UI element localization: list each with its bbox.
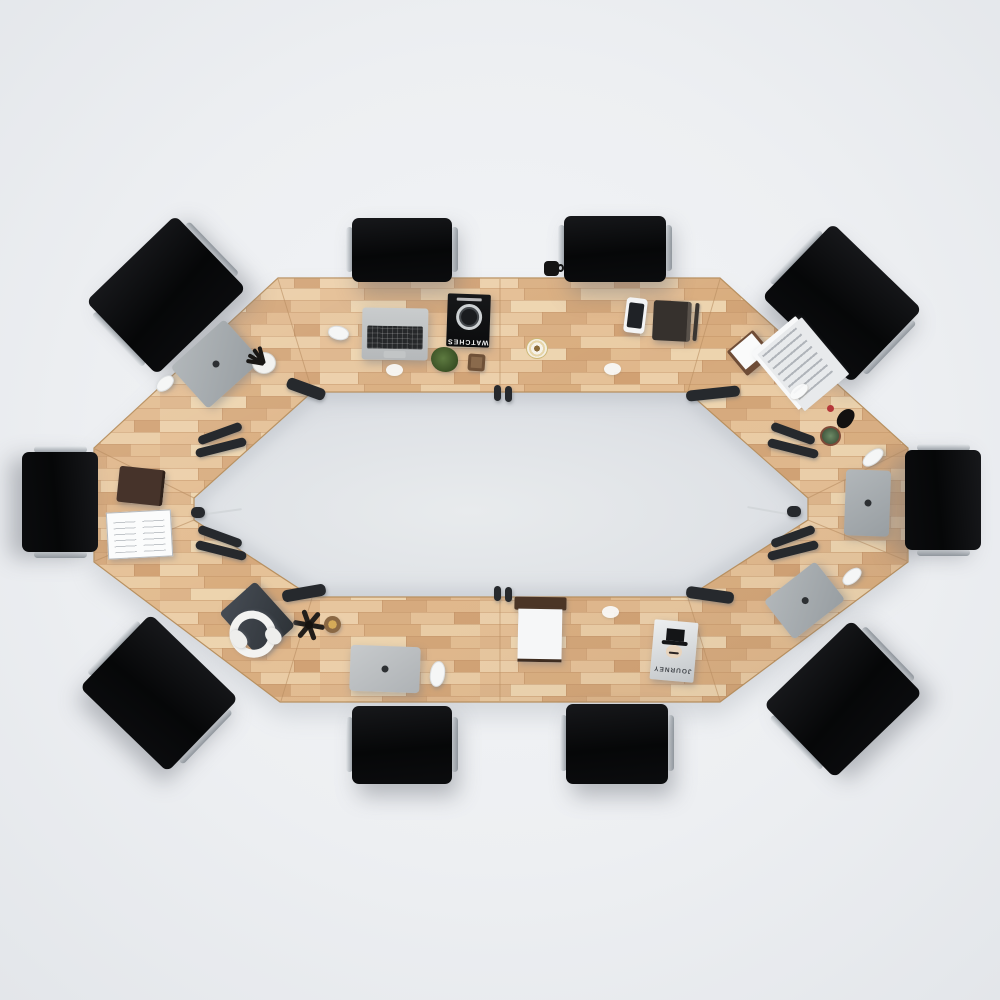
tray-paper <box>517 609 562 663</box>
pen-cup <box>252 352 276 374</box>
closed-laptop <box>349 645 421 693</box>
chair-seat <box>564 216 666 282</box>
chair-right <box>905 450 981 550</box>
chair-arm <box>451 227 458 272</box>
laptop-keyboard <box>366 325 423 349</box>
watches-magazine: WATCHES <box>446 293 491 347</box>
laptop-logo-icon <box>864 499 871 506</box>
laptop-logo-icon <box>211 359 221 369</box>
magazine-title: WATCHES <box>446 337 489 345</box>
chair-arm <box>917 549 970 556</box>
chair-bottom-left <box>352 706 452 784</box>
open-laptop <box>362 307 429 360</box>
white-cup <box>386 364 403 376</box>
white-cup <box>602 606 619 618</box>
woven-coaster <box>467 353 485 371</box>
desk-lamp <box>494 586 501 601</box>
chair-arm <box>451 717 458 772</box>
chair-seat <box>905 450 981 550</box>
chair-bottom-right <box>566 704 668 784</box>
chair-seat <box>352 706 452 784</box>
black-mug <box>544 261 559 276</box>
desk-lamp <box>787 506 801 517</box>
smartphone <box>623 297 648 334</box>
magazine-title: JOURNEY <box>650 664 694 675</box>
chair-arm <box>665 225 672 271</box>
paper-tray <box>513 597 566 663</box>
chair-seat <box>566 704 668 784</box>
laptop-logo-icon <box>800 596 810 606</box>
desk-lamp <box>494 385 501 401</box>
closed-laptop <box>844 469 891 537</box>
desk-lamp <box>505 386 512 402</box>
white-cup <box>604 363 621 375</box>
magazine-headline-bar <box>457 297 481 301</box>
coffee-cup <box>526 338 548 359</box>
chair-seat <box>22 452 98 552</box>
phone-screen <box>627 302 645 329</box>
chair-left <box>22 452 98 552</box>
chair-top-right <box>564 216 666 282</box>
journey-magazine: JOURNEY <box>649 619 698 683</box>
desk-lamp <box>191 507 205 518</box>
red-flower <box>827 405 834 412</box>
laptop-logo-icon <box>381 665 388 672</box>
sketch-lines <box>113 518 136 553</box>
mug-handle <box>557 264 564 272</box>
woven-basket <box>324 616 341 633</box>
chair-arm <box>34 551 87 558</box>
chair-top-left <box>352 218 452 282</box>
leather-folder <box>116 466 166 507</box>
chair-arm <box>667 715 674 771</box>
dark-notebook <box>652 300 692 342</box>
desk-lamp <box>505 587 512 602</box>
chair-seat <box>352 218 452 282</box>
scene: WATCHES JOURNEY <box>0 0 1000 1000</box>
succulent-plant <box>820 426 841 446</box>
open-sketchbook <box>106 509 173 559</box>
laptop-trackpad <box>384 350 405 358</box>
wristwatch-icon <box>455 304 482 331</box>
green-plant <box>431 347 458 372</box>
sketch-lines <box>142 516 165 551</box>
